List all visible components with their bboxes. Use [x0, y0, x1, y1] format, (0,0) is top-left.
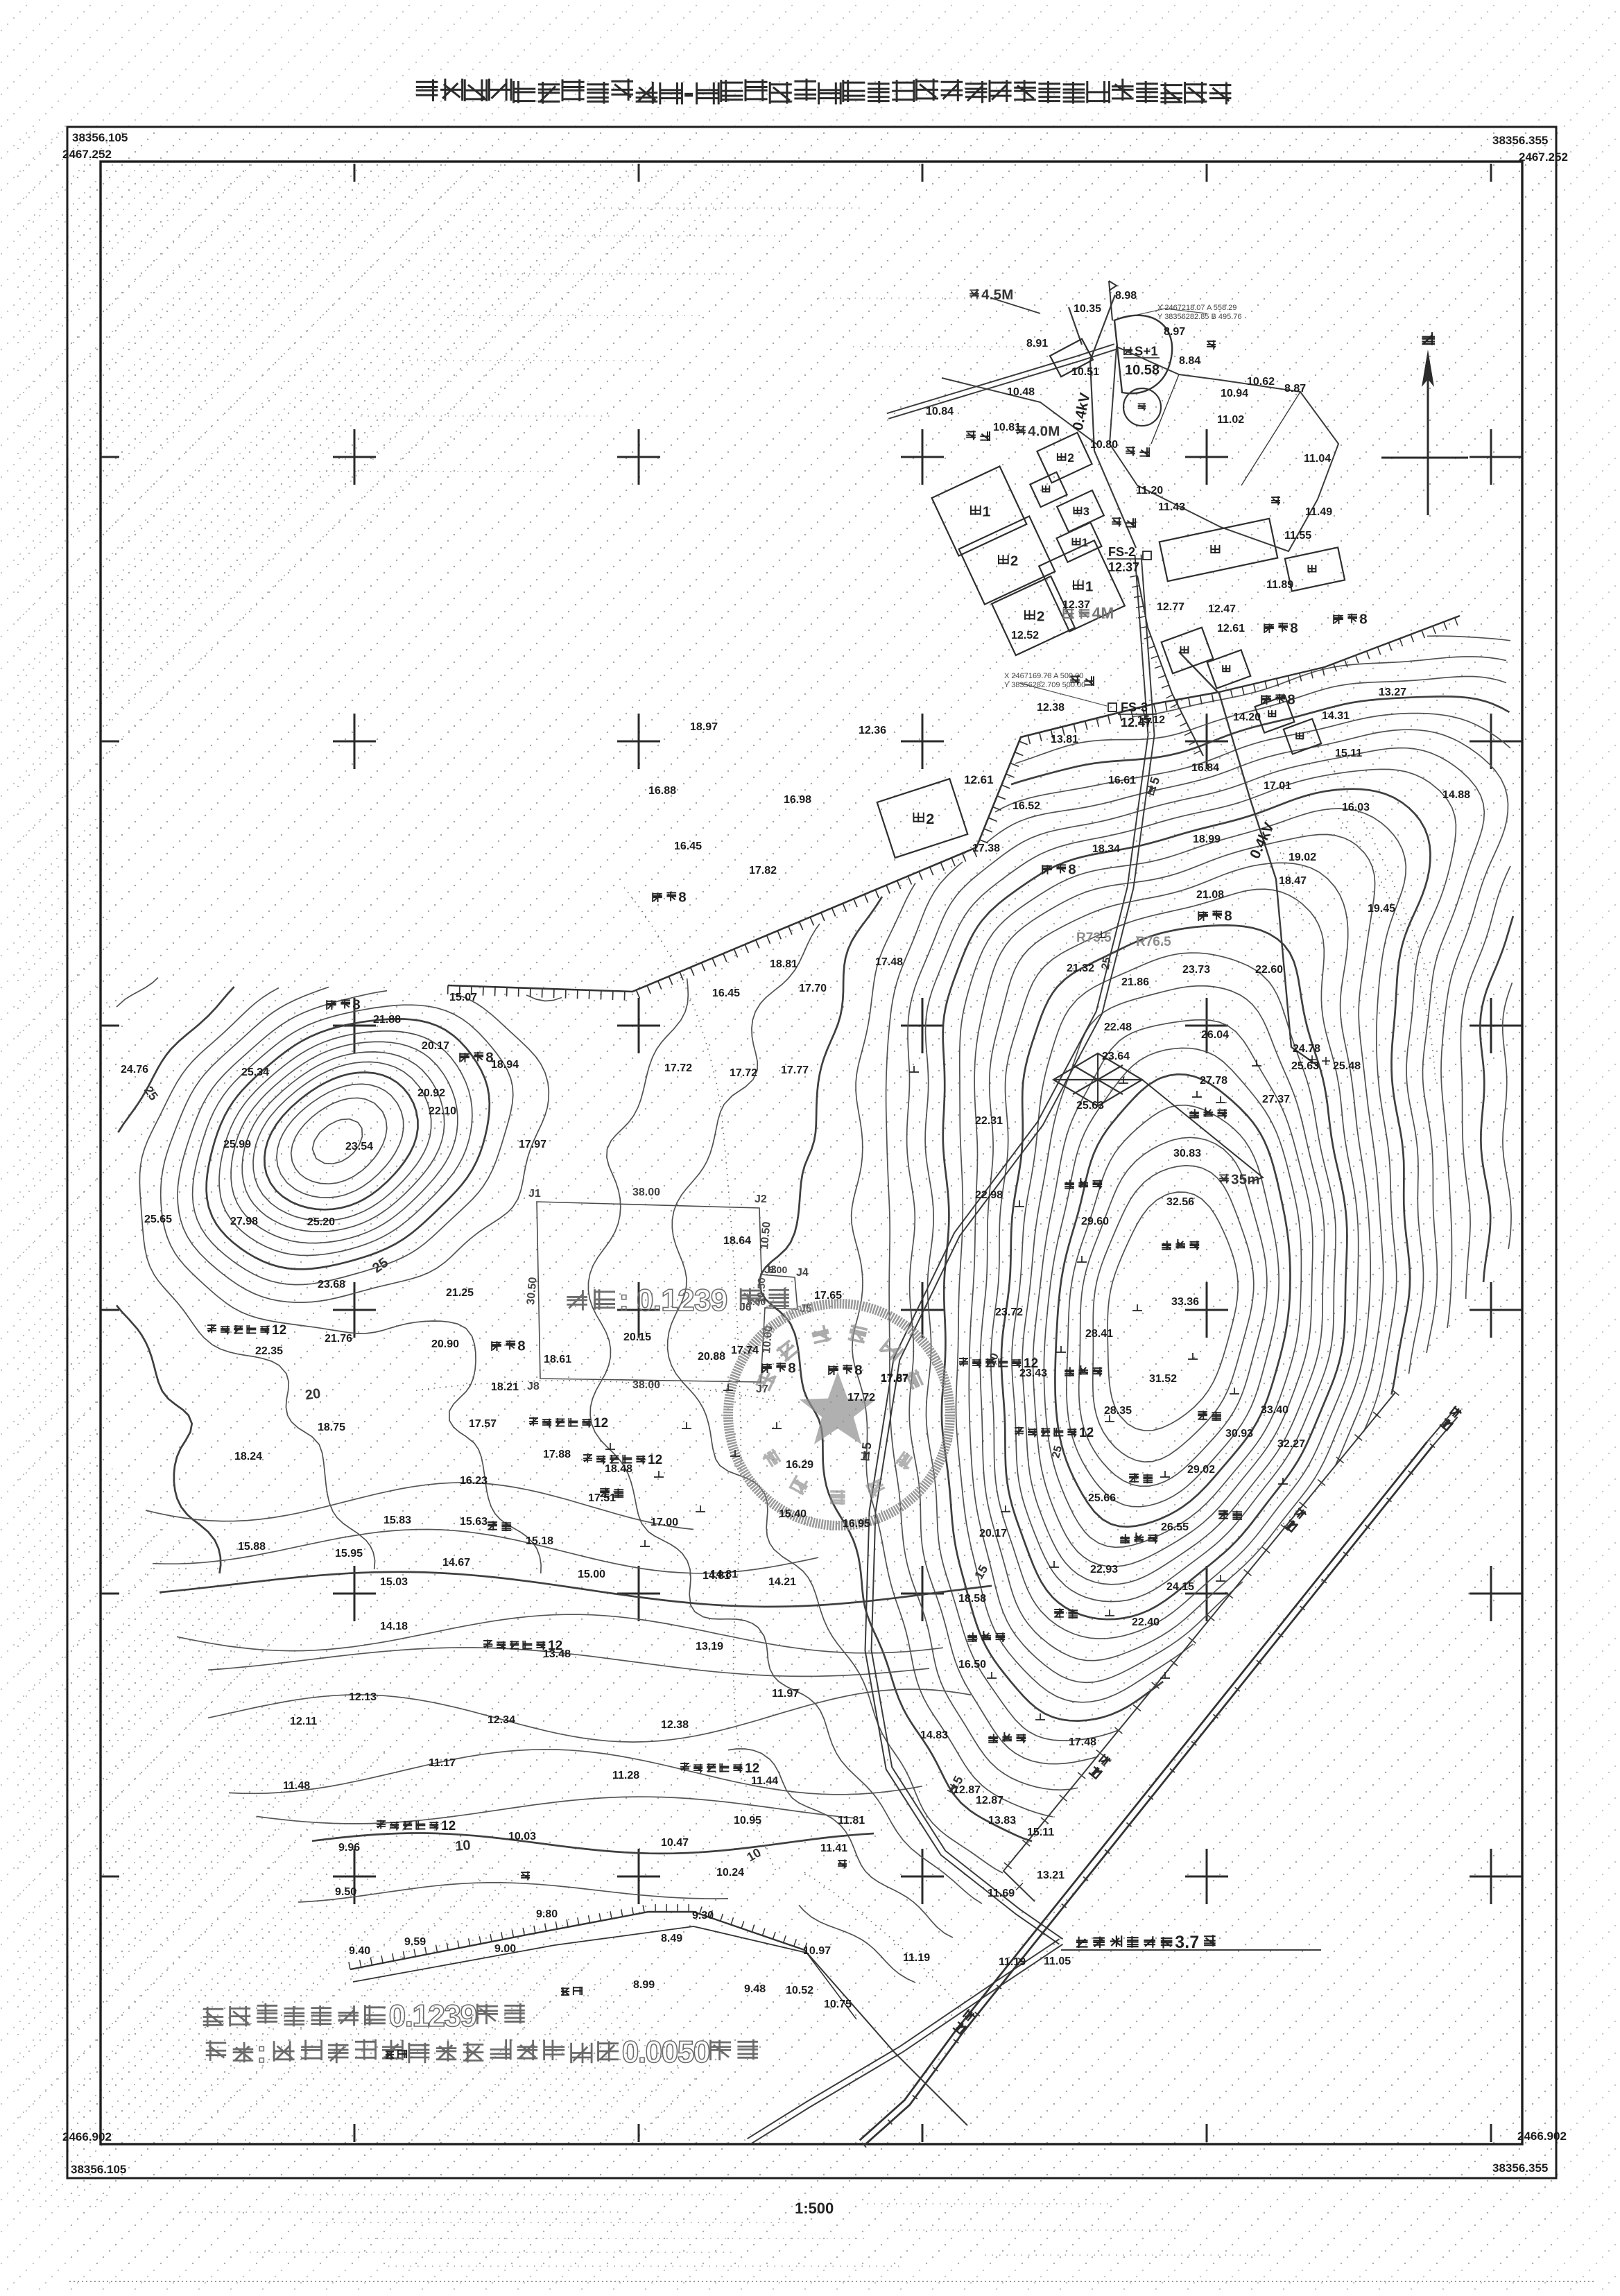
svg-text:18.64: 18.64 — [723, 1235, 751, 1247]
svg-text:12.37: 12.37 — [1108, 560, 1139, 574]
svg-text:32.27: 32.27 — [1277, 1438, 1305, 1450]
svg-text:15.95: 15.95 — [335, 1548, 363, 1560]
svg-text:10.03: 10.03 — [508, 1831, 536, 1842]
svg-text:8: 8 — [485, 1049, 494, 1065]
svg-text:22.98: 22.98 — [975, 1189, 1003, 1201]
svg-text:18.94: 18.94 — [491, 1059, 519, 1071]
svg-text:9.80: 9.80 — [536, 1908, 558, 1920]
svg-text:17.65: 17.65 — [814, 1290, 842, 1302]
svg-text::: : — [257, 2035, 266, 2069]
svg-text:21.76: 21.76 — [325, 1333, 352, 1345]
svg-text:8.97: 8.97 — [1164, 326, 1185, 338]
svg-text:15.18: 15.18 — [526, 1535, 553, 1547]
svg-text:21.08: 21.08 — [1196, 889, 1224, 901]
svg-text:22.10: 22.10 — [429, 1105, 456, 1117]
svg-text:1: 1 — [1085, 578, 1094, 594]
svg-text:2467.252: 2467.252 — [1519, 150, 1568, 164]
svg-text:27.98: 27.98 — [230, 1216, 258, 1227]
svg-text:14.18: 14.18 — [380, 1621, 408, 1632]
svg-text:20: 20 — [304, 1386, 322, 1404]
svg-text:20.88: 20.88 — [698, 1351, 725, 1363]
svg-text:Y 38356282.85 B 495.76: Y 38356282.85 B 495.76 — [1157, 313, 1242, 321]
svg-text:12: 12 — [548, 1639, 562, 1653]
svg-text:27.37: 27.37 — [1262, 1094, 1290, 1105]
svg-text:8: 8 — [517, 1338, 526, 1354]
svg-text:J8: J8 — [527, 1381, 540, 1392]
svg-text:4.0M: 4.0M — [1028, 423, 1060, 439]
svg-text:29.02: 29.02 — [1187, 1464, 1215, 1476]
svg-text:20.17: 20.17 — [979, 1528, 1007, 1539]
svg-text:18.97: 18.97 — [690, 721, 718, 733]
svg-text:16.88: 16.88 — [648, 785, 676, 797]
svg-text:24.15: 24.15 — [1166, 1581, 1194, 1593]
svg-text:9.40: 9.40 — [349, 1945, 370, 1957]
svg-text:15.63: 15.63 — [460, 1516, 488, 1528]
svg-text:10.97: 10.97 — [803, 1945, 831, 1957]
svg-text:8: 8 — [1359, 611, 1368, 627]
svg-text:10.51: 10.51 — [1071, 366, 1099, 378]
svg-text:9.50: 9.50 — [335, 1886, 356, 1898]
svg-text:11.41: 11.41 — [820, 1842, 847, 1854]
svg-text:38356.355: 38356.355 — [1492, 134, 1548, 147]
svg-text:1:500: 1:500 — [795, 2200, 834, 2217]
svg-text:20.92: 20.92 — [417, 1087, 445, 1099]
svg-text:2466.902: 2466.902 — [62, 2130, 112, 2143]
svg-text:18.48: 18.48 — [605, 1463, 632, 1475]
svg-text:11.44: 11.44 — [751, 1775, 778, 1787]
svg-text:25.48: 25.48 — [1333, 1060, 1361, 1072]
svg-text:10.58: 10.58 — [1125, 363, 1160, 378]
svg-text:8.99: 8.99 — [633, 1979, 655, 1991]
svg-text:11.49: 11.49 — [1305, 506, 1332, 518]
svg-text:8.00: 8.00 — [768, 1264, 787, 1275]
svg-text:11.97: 11.97 — [772, 1688, 799, 1700]
svg-text:12: 12 — [648, 1453, 662, 1467]
svg-text:11.81: 11.81 — [838, 1815, 865, 1827]
svg-text:15.00: 15.00 — [578, 1569, 605, 1580]
svg-text:12: 12 — [441, 1819, 456, 1833]
svg-text:25: 25 — [1100, 956, 1114, 971]
svg-text:10.52: 10.52 — [786, 1985, 813, 1996]
svg-text:5: 5 — [859, 1442, 874, 1450]
svg-text:16.45: 16.45 — [712, 987, 740, 999]
svg-text:12.13: 12.13 — [349, 1691, 377, 1703]
svg-text:15.88: 15.88 — [238, 1541, 266, 1553]
svg-text:17.97: 17.97 — [519, 1139, 546, 1150]
svg-text:17.82: 17.82 — [749, 865, 777, 877]
svg-text:10.35: 10.35 — [1074, 303, 1101, 315]
svg-text:17.38: 17.38 — [972, 843, 1000, 854]
svg-text:18.81: 18.81 — [770, 958, 798, 970]
svg-text:30.93: 30.93 — [1225, 1428, 1253, 1440]
svg-text:22.93: 22.93 — [1090, 1564, 1118, 1576]
svg-text:3: 3 — [1083, 506, 1089, 518]
svg-text:16.29: 16.29 — [786, 1459, 813, 1471]
svg-text:12.61: 12.61 — [1217, 623, 1245, 635]
svg-text:22.40: 22.40 — [1132, 1616, 1160, 1628]
svg-text:12.52: 12.52 — [1011, 630, 1039, 641]
svg-text:30.83: 30.83 — [1173, 1148, 1201, 1159]
svg-text:16.61: 16.61 — [1108, 775, 1136, 786]
svg-text:19.45: 19.45 — [1368, 903, 1395, 915]
svg-text:17.51: 17.51 — [588, 1492, 616, 1504]
svg-text:3.7: 3.7 — [1175, 1933, 1199, 1952]
svg-text:28.41: 28.41 — [1085, 1328, 1113, 1340]
svg-text:12: 12 — [1024, 1356, 1038, 1371]
svg-text:16.52: 16.52 — [1013, 800, 1040, 812]
svg-text:12.38: 12.38 — [1037, 702, 1065, 714]
svg-text:12.34: 12.34 — [488, 1714, 515, 1726]
svg-text:25.20: 25.20 — [307, 1216, 335, 1228]
svg-text:X 2467218.07 A 558.29: X 2467218.07 A 558.29 — [1157, 304, 1236, 312]
svg-text:15.40: 15.40 — [779, 1508, 807, 1520]
svg-text:10.62: 10.62 — [1247, 376, 1275, 388]
svg-text:17.88: 17.88 — [543, 1449, 571, 1460]
svg-text:8.91: 8.91 — [1026, 338, 1048, 349]
svg-text:23.73: 23.73 — [1182, 964, 1210, 976]
svg-text:16.98: 16.98 — [784, 794, 811, 806]
svg-text:4M: 4M — [1092, 604, 1114, 622]
svg-text:38.00: 38.00 — [632, 1186, 660, 1198]
svg-text:12.87: 12.87 — [976, 1795, 1003, 1806]
svg-text:2: 2 — [1037, 608, 1045, 624]
svg-text:22.48: 22.48 — [1104, 1021, 1132, 1033]
svg-text:14.31: 14.31 — [1322, 710, 1350, 722]
svg-text:38356.105: 38356.105 — [71, 2163, 126, 2176]
svg-text:J1: J1 — [528, 1188, 541, 1200]
svg-text:18.34: 18.34 — [1092, 843, 1120, 855]
svg-text:22.60: 22.60 — [1255, 964, 1283, 976]
svg-text:12: 12 — [594, 1416, 608, 1431]
svg-text:8: 8 — [352, 996, 361, 1012]
svg-text:17.72: 17.72 — [847, 1392, 875, 1404]
svg-text:10.47: 10.47 — [661, 1837, 689, 1849]
svg-text:24.78: 24.78 — [1293, 1043, 1320, 1055]
svg-text:20.17: 20.17 — [422, 1040, 449, 1052]
svg-text:16.95: 16.95 — [843, 1518, 870, 1530]
svg-text:14.83: 14.83 — [920, 1729, 948, 1741]
svg-text:16.03: 16.03 — [1342, 802, 1370, 813]
svg-text:31.52: 31.52 — [1149, 1373, 1177, 1385]
svg-text:11.48: 11.48 — [283, 1780, 310, 1792]
svg-text:4.5M: 4.5M — [981, 286, 1013, 302]
svg-text:12.37: 12.37 — [1062, 599, 1090, 611]
svg-text:9.30: 9.30 — [692, 1910, 714, 1922]
svg-text:15.11: 15.11 — [1335, 748, 1362, 759]
svg-text:10.84: 10.84 — [926, 406, 954, 417]
svg-text:33.36: 33.36 — [1171, 1296, 1199, 1308]
svg-text:8: 8 — [854, 1362, 863, 1378]
svg-text:R76.5: R76.5 — [1136, 935, 1171, 949]
svg-text:17.57: 17.57 — [469, 1418, 497, 1430]
svg-text:10: 10 — [454, 1838, 471, 1854]
svg-text:14.81: 14.81 — [710, 1569, 738, 1580]
svg-text:15.07: 15.07 — [449, 992, 477, 1003]
svg-text:18.47: 18.47 — [1279, 875, 1307, 887]
svg-text:15.03: 15.03 — [380, 1576, 408, 1588]
svg-text:12: 12 — [745, 1761, 759, 1776]
svg-text:1: 1 — [983, 503, 991, 519]
svg-text:12.47: 12.47 — [1208, 603, 1236, 615]
svg-text:17.72: 17.72 — [730, 1067, 757, 1079]
svg-text:8: 8 — [678, 889, 687, 905]
svg-text:12.61: 12.61 — [964, 773, 994, 786]
svg-text:13.19: 13.19 — [696, 1641, 723, 1652]
svg-text:2466.902: 2466.902 — [1517, 2130, 1567, 2143]
svg-text:33.40: 33.40 — [1261, 1404, 1289, 1416]
svg-text:11.28: 11.28 — [612, 1770, 639, 1781]
svg-text:14.21: 14.21 — [768, 1576, 796, 1588]
svg-text:23.68: 23.68 — [318, 1279, 345, 1291]
svg-text:12: 12 — [1079, 1426, 1094, 1440]
svg-text:10.94: 10.94 — [1221, 388, 1248, 399]
svg-text:17.70: 17.70 — [799, 983, 827, 994]
svg-text:17.00: 17.00 — [650, 1517, 678, 1528]
svg-text:17.48: 17.48 — [1069, 1736, 1096, 1748]
svg-text:25.34: 25.34 — [241, 1067, 269, 1078]
svg-text:16.23: 16.23 — [460, 1475, 488, 1487]
svg-text:17.87: 17.87 — [881, 1372, 908, 1384]
svg-text:25.63: 25.63 — [1291, 1060, 1319, 1072]
svg-text:18.58: 18.58 — [958, 1593, 986, 1605]
svg-text:25.63: 25.63 — [1076, 1100, 1104, 1112]
svg-text:26.04: 26.04 — [1201, 1029, 1229, 1041]
svg-text:13.81: 13.81 — [1051, 734, 1078, 745]
svg-text:13.21: 13.21 — [1037, 1870, 1065, 1881]
svg-text:10.80: 10.80 — [1090, 439, 1118, 451]
svg-text:0.1239: 0.1239 — [389, 1999, 476, 2033]
svg-text:22.35: 22.35 — [255, 1345, 283, 1357]
svg-text:11.19: 11.19 — [903, 1952, 930, 1964]
svg-text:10.95: 10.95 — [734, 1815, 761, 1827]
svg-text:: 0.1239: : 0.1239 — [619, 1284, 727, 1318]
svg-text:8: 8 — [1068, 861, 1076, 877]
svg-text:14.88: 14.88 — [1442, 789, 1470, 801]
svg-text:0.0050: 0.0050 — [622, 2035, 709, 2069]
svg-text:J4: J4 — [796, 1267, 809, 1279]
svg-text:11.17: 11.17 — [429, 1757, 456, 1769]
svg-text:15.83: 15.83 — [384, 1514, 411, 1526]
svg-text:R73.5: R73.5 — [1076, 931, 1112, 945]
svg-text:18.21: 18.21 — [491, 1381, 519, 1393]
svg-text:9.96: 9.96 — [338, 1842, 360, 1854]
svg-text:9.59: 9.59 — [404, 1936, 426, 1948]
svg-text:29.60: 29.60 — [1081, 1216, 1109, 1227]
svg-text:11.04: 11.04 — [1304, 453, 1331, 465]
svg-text:16.50: 16.50 — [958, 1659, 986, 1671]
svg-text:25.99: 25.99 — [223, 1139, 251, 1150]
svg-text:14.67: 14.67 — [442, 1557, 470, 1569]
svg-text:11.02: 11.02 — [1217, 414, 1244, 426]
svg-text:2: 2 — [926, 810, 934, 827]
svg-text:19.02: 19.02 — [1289, 852, 1316, 863]
svg-text:12.11: 12.11 — [290, 1716, 317, 1727]
svg-text:10.50: 10.50 — [759, 1221, 773, 1250]
svg-text:22.31: 22.31 — [975, 1115, 1003, 1127]
svg-text:12.77: 12.77 — [1157, 601, 1184, 613]
svg-text:11.89: 11.89 — [1266, 579, 1293, 591]
svg-text:8.98: 8.98 — [1115, 290, 1137, 302]
svg-text:10.81: 10.81 — [993, 422, 1021, 433]
svg-text:FS-2: FS-2 — [1108, 545, 1135, 559]
svg-text:2467.252: 2467.252 — [62, 148, 112, 161]
svg-text:12.38: 12.38 — [661, 1719, 689, 1731]
svg-text:21.88: 21.88 — [373, 1014, 401, 1026]
svg-text:17.48: 17.48 — [875, 956, 903, 968]
svg-text:8: 8 — [788, 1360, 796, 1376]
svg-text:11.43: 11.43 — [1158, 501, 1185, 513]
svg-text:17.74: 17.74 — [731, 1345, 759, 1356]
svg-text:11.55: 11.55 — [1284, 530, 1311, 542]
svg-text:18.24: 18.24 — [234, 1451, 262, 1462]
svg-text:13.83: 13.83 — [988, 1815, 1016, 1827]
svg-text:26.55: 26.55 — [1161, 1521, 1189, 1533]
svg-text:25.65: 25.65 — [144, 1214, 172, 1225]
svg-text:35m: 35m — [1231, 1171, 1260, 1187]
svg-text:15.11: 15.11 — [1027, 1827, 1054, 1838]
svg-text:23.72: 23.72 — [995, 1306, 1023, 1318]
svg-text:25.66: 25.66 — [1088, 1492, 1116, 1504]
svg-text:27.78: 27.78 — [1200, 1075, 1227, 1087]
svg-text:18.99: 18.99 — [1193, 834, 1221, 845]
svg-text:9.00: 9.00 — [494, 1943, 516, 1955]
svg-text:11.20: 11.20 — [1136, 485, 1163, 497]
svg-text:2: 2 — [1010, 553, 1019, 569]
svg-text:23.64: 23.64 — [1102, 1051, 1130, 1062]
svg-text:21.32: 21.32 — [1067, 963, 1094, 974]
svg-text:12.87: 12.87 — [953, 1784, 981, 1796]
svg-text:28.35: 28.35 — [1104, 1405, 1132, 1417]
svg-text:11.19: 11.19 — [999, 1956, 1026, 1968]
svg-text:17.77: 17.77 — [781, 1064, 809, 1076]
svg-text:38.00: 38.00 — [632, 1379, 660, 1391]
svg-text:21.25: 21.25 — [446, 1287, 474, 1299]
svg-text:11.69: 11.69 — [988, 1888, 1015, 1899]
svg-text:J2: J2 — [755, 1193, 767, 1205]
svg-text:20.90: 20.90 — [431, 1338, 459, 1350]
svg-text:10.24: 10.24 — [716, 1867, 744, 1879]
svg-text:10.75: 10.75 — [824, 1999, 852, 2010]
svg-text:8.49: 8.49 — [661, 1933, 682, 1944]
svg-text:15.12: 15.12 — [1137, 714, 1165, 726]
svg-text:12: 12 — [272, 1323, 286, 1338]
svg-text:FS-3: FS-3 — [1121, 700, 1148, 714]
svg-text:1: 1 — [1082, 537, 1088, 549]
svg-text:24.76: 24.76 — [121, 1064, 148, 1076]
svg-text:17.01: 17.01 — [1264, 780, 1291, 792]
svg-text:30.50: 30.50 — [525, 1277, 539, 1305]
svg-text:11.05: 11.05 — [1044, 1956, 1071, 1967]
svg-text:17.72: 17.72 — [664, 1062, 692, 1074]
svg-text:8.84: 8.84 — [1179, 355, 1200, 367]
svg-text:10.48: 10.48 — [1007, 386, 1035, 398]
svg-text:10.50: 10.50 — [755, 1277, 768, 1304]
svg-text:9.48: 9.48 — [744, 1983, 766, 1995]
svg-text:8.87: 8.87 — [1284, 383, 1306, 395]
svg-text:16.84: 16.84 — [1191, 762, 1219, 774]
svg-text:8: 8 — [1287, 691, 1295, 707]
svg-text:38356.105: 38356.105 — [72, 131, 128, 144]
svg-text:13.27: 13.27 — [1379, 687, 1406, 698]
svg-text:8: 8 — [1224, 908, 1232, 924]
svg-text:21.86: 21.86 — [1121, 976, 1149, 988]
svg-text:38356.355: 38356.355 — [1492, 2161, 1548, 2175]
svg-text:18.61: 18.61 — [544, 1354, 571, 1365]
svg-text:16.45: 16.45 — [674, 840, 702, 852]
svg-text:20.15: 20.15 — [623, 1331, 651, 1343]
svg-text:2: 2 — [1067, 451, 1074, 465]
svg-text:18.75: 18.75 — [318, 1422, 345, 1433]
svg-text:23.54: 23.54 — [345, 1141, 373, 1153]
svg-text:32.56: 32.56 — [1166, 1196, 1194, 1208]
svg-text:12.36: 12.36 — [859, 725, 886, 736]
svg-text:14.20: 14.20 — [1233, 711, 1261, 723]
svg-text:8: 8 — [1290, 620, 1298, 636]
